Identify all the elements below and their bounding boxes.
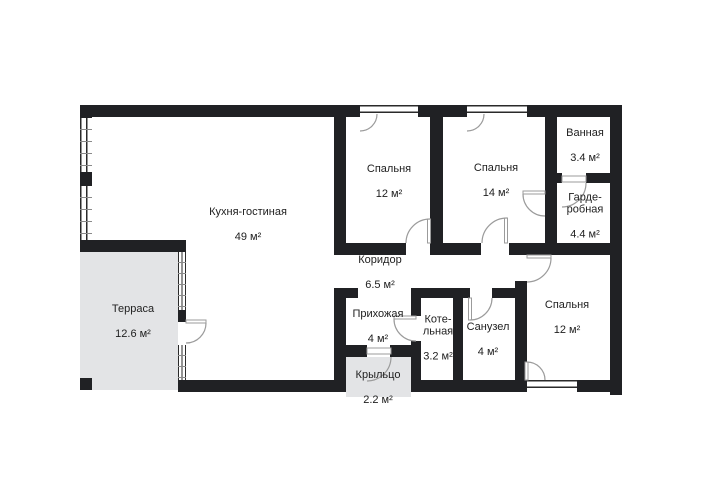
wall-segment <box>178 380 346 392</box>
room-area: 6.5 м² <box>358 278 401 291</box>
wall-segment <box>492 288 527 298</box>
wall-segment <box>430 243 481 255</box>
room-area: 4.4 м² <box>567 229 604 242</box>
window-symbol <box>80 186 92 240</box>
window-symbol <box>178 252 186 310</box>
wall-segment <box>453 298 463 380</box>
window-symbol <box>527 380 577 392</box>
room-area: 2.2 м² <box>356 393 401 406</box>
wall-segment <box>80 240 186 252</box>
window-symbol <box>360 105 418 117</box>
room-label-bathroom: Ванная 3.4 м² <box>566 114 604 177</box>
room-name: Гарде- робная <box>567 191 604 216</box>
wall-segment <box>80 105 622 117</box>
wall-segment <box>80 378 92 390</box>
wall-segment <box>430 117 443 243</box>
room-area: 12.6 м² <box>112 327 154 340</box>
wall-segment <box>178 310 186 322</box>
room-area: 14 м² <box>474 186 518 199</box>
wall-segment <box>545 117 557 255</box>
room-name: Крыльцо <box>356 368 401 381</box>
wall-segment <box>411 298 421 316</box>
wall-segment <box>411 380 622 392</box>
room-label-hallway: Прихожая 4 м² <box>353 295 404 358</box>
room-label-bedroom-top-mid: Спальня 14 м² <box>474 149 518 212</box>
room-area: 3.2 м² <box>423 351 453 364</box>
room-name: Терраса <box>112 302 154 315</box>
room-area: 12 м² <box>545 323 589 336</box>
room-label-bedroom-top-left: Спальня 12 м² <box>367 150 411 213</box>
room-name: Прихожая <box>353 307 404 320</box>
room-name: Спальня <box>474 161 518 174</box>
window-symbol <box>178 345 186 380</box>
wall-segment <box>509 243 622 255</box>
wall-segment <box>411 288 470 298</box>
room-area: 4 м² <box>353 332 404 345</box>
room-label-kitchen-living: Кухня-гостиная 49 м² <box>209 193 287 256</box>
room-label-porch: Крыльцо 2.2 м² <box>356 356 401 419</box>
room-name: Ванная <box>566 126 604 139</box>
room-area: 4 м² <box>467 345 510 358</box>
room-area: 3.4 м² <box>566 151 604 164</box>
wall-segment <box>334 288 346 392</box>
room-label-terrace: Терраса 12.6 м² <box>112 290 154 353</box>
window-symbol <box>80 118 92 172</box>
wall-segment <box>334 117 346 243</box>
window-symbol <box>467 105 527 117</box>
room-label-boiler-room: Коте- льная 3.2 м² <box>423 301 453 376</box>
room-name: Спальня <box>545 298 589 311</box>
room-name: Коридор <box>358 253 401 266</box>
room-label-wardrobe: Гарде- робная 4.4 м² <box>567 179 604 254</box>
room-area: 49 м² <box>209 230 287 243</box>
room-name: Спальня <box>367 162 411 175</box>
room-label-wc: Санузел 4 м² <box>467 308 510 371</box>
room-name: Кухня-гостиная <box>209 205 287 218</box>
room-area: 12 м² <box>367 187 411 200</box>
room-name: Коте- льная <box>423 313 453 338</box>
room-label-bedroom-right: Спальня 12 м² <box>545 286 589 349</box>
wall-segment <box>557 173 562 183</box>
floor-plan: Кухня-гостиная 49 м² Спальня 12 м² Спаль… <box>0 0 702 502</box>
room-name: Санузел <box>467 320 510 333</box>
